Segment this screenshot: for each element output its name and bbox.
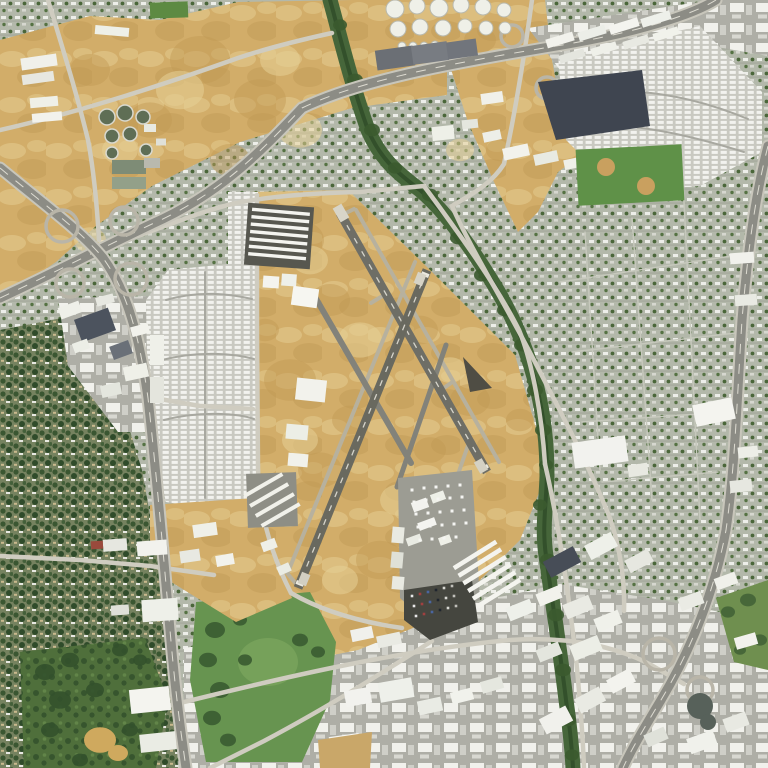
field-mottling-dark-17 (506, 409, 534, 431)
ballpark (576, 144, 685, 205)
park-central-trees-5 (238, 654, 252, 665)
detention-pond-1 (700, 714, 716, 730)
parked-aircraft-18 (453, 523, 456, 526)
parked-cars-11 (453, 595, 456, 598)
field-mottling-dark-7 (414, 437, 446, 463)
creek-trees-2 (364, 124, 380, 137)
parked-aircraft-4 (459, 484, 462, 487)
oil-tank-farm-6 (390, 21, 406, 37)
oil-tank-farm-7 (412, 19, 428, 35)
creek-trees-3 (388, 162, 402, 173)
golf-trees-7 (41, 723, 59, 737)
parked-cars-12 (415, 615, 418, 618)
sports-field-north-0 (150, 1, 189, 18)
field-mottling-dark-11 (234, 79, 286, 121)
field-mottling-light-9 (446, 139, 474, 161)
parked-aircraft-19 (465, 522, 468, 525)
parked-aircraft-5 (413, 501, 416, 504)
hangars-west-0 (263, 275, 280, 288)
treatment-plant-tanks-6 (106, 147, 118, 159)
parked-aircraft-14 (463, 509, 466, 512)
park-central-trees-3 (203, 711, 221, 725)
parked-aircraft-17 (441, 524, 444, 527)
treatment-plant-basins-0 (112, 160, 146, 174)
golf-trees-1 (61, 653, 79, 667)
golf-trees-2 (112, 644, 128, 657)
parked-cars-14 (431, 611, 434, 614)
hangars-west-3 (295, 377, 327, 402)
golf-trees-8 (122, 724, 138, 737)
parked-cars-2 (427, 591, 430, 594)
oil-tank-farm-8 (435, 20, 451, 36)
park-central-trees-1 (199, 653, 217, 667)
parked-aircraft-3 (447, 485, 450, 488)
parked-aircraft-21 (431, 538, 434, 541)
parked-aircraft-23 (455, 536, 458, 539)
golf-trees-3 (133, 654, 147, 665)
park-central-trees-8 (311, 646, 325, 657)
parked-cars-3 (435, 589, 438, 592)
parked-aircraft-12 (439, 511, 442, 514)
parked-aircraft-2 (435, 486, 438, 489)
commercial-freeway-west-4 (103, 538, 128, 552)
oil-tank-farm-10 (479, 21, 493, 35)
parked-cars-16 (447, 607, 450, 610)
ballpark-0 (576, 144, 685, 205)
parked-cars-10 (445, 597, 448, 600)
treatment-plant-basins-2 (144, 158, 160, 168)
golf-sand-patches-1 (108, 745, 128, 761)
commercial-freeway-west-2 (129, 686, 171, 714)
oil-tank-farm-2 (430, 0, 448, 17)
oil-tank-farm-4 (475, 0, 491, 15)
industrial-leftmid-buildings-8 (150, 335, 164, 365)
parked-aircraft-13 (451, 510, 454, 513)
oil-tank-farm-9 (458, 19, 472, 33)
treatment-plant-tanks-3 (105, 129, 119, 143)
parked-cars-9 (437, 599, 440, 602)
creek-trees-14 (548, 609, 564, 622)
commercial-freeway-west-5 (91, 541, 104, 550)
field-mottling-light-5 (322, 566, 358, 595)
parked-aircraft-0 (411, 489, 414, 492)
park-central-trees-7 (292, 634, 308, 647)
creek-trees-12 (533, 499, 547, 510)
terminal-buildings-7 (391, 576, 404, 590)
treatment-plant-tanks-0 (99, 109, 115, 125)
hangars-west-2 (291, 286, 319, 308)
parked-cars-8 (429, 601, 432, 604)
commercial-freeway-west-3 (139, 731, 177, 753)
parked-cars-4 (443, 587, 446, 590)
park-central-trees-4 (220, 734, 236, 747)
parked-cars-7 (421, 603, 424, 606)
industrial-topleft-buildings-5 (144, 124, 156, 132)
creek-trees-15 (555, 664, 571, 677)
park-right-trees-1 (740, 594, 756, 607)
field-mottling-dark-13 (70, 54, 110, 86)
commercial-freeway-west-0 (137, 539, 168, 556)
creek-trees-17 (565, 749, 579, 760)
hangars-west-1 (281, 273, 297, 286)
parked-cars-15 (439, 609, 442, 612)
parked-aircraft-11 (427, 512, 430, 515)
oil-tank-farm-3 (453, 0, 469, 13)
ball-diamonds-1 (637, 177, 655, 195)
parked-cars-1 (419, 593, 422, 596)
parked-aircraft-15 (417, 526, 420, 529)
golf-trees-4 (49, 691, 71, 709)
parked-aircraft-6 (425, 499, 428, 502)
oil-tank-farm-11 (499, 22, 511, 34)
parked-aircraft-20 (419, 539, 422, 542)
golf-trees-9 (72, 754, 88, 767)
parked-aircraft-10 (415, 513, 418, 516)
treatment-plant-tanks-4 (123, 127, 137, 141)
oil-tank-farm-1 (409, 0, 425, 14)
parked-aircraft-8 (449, 497, 452, 500)
park-right-trees-0 (721, 606, 735, 617)
warehouses-top-4 (431, 125, 454, 141)
ball-diamonds-0 (597, 158, 615, 176)
parked-cars-6 (413, 605, 416, 608)
hangars-west-5 (287, 453, 308, 468)
oil-tank-farm-5 (497, 3, 511, 17)
treatment-plant-tanks-5 (140, 144, 152, 156)
golf-trees-5 (86, 683, 104, 697)
satellite-aerial-photo (0, 0, 768, 768)
treatment-plant-tanks-1 (117, 105, 133, 121)
terminal-buildings-5 (391, 527, 404, 544)
commercial-freeway-west-1 (141, 598, 178, 622)
parked-cars-5 (451, 585, 454, 588)
commercial-freeway-west-6 (111, 604, 130, 615)
creek-trees-0 (333, 19, 347, 30)
commercial-right-edge-1 (735, 294, 758, 307)
parked-cars-0 (411, 595, 414, 598)
industrial-leftmid-buildings-9 (150, 377, 164, 403)
commercial-right-edge-4 (729, 479, 752, 493)
parked-aircraft-9 (461, 496, 464, 499)
warehouses-top-5 (462, 119, 479, 130)
hangars-west-4 (285, 424, 308, 441)
commercial-right-edge-0 (730, 252, 755, 265)
oil-tank-farm-0 (386, 0, 404, 18)
industrial-topleft-buildings-6 (156, 139, 166, 146)
parked-cars-13 (423, 613, 426, 616)
parked-aircraft-7 (437, 498, 440, 501)
aerial-image-canvas (0, 0, 768, 768)
park-central-trees-0 (205, 622, 225, 638)
parked-aircraft-1 (423, 487, 426, 490)
golf-trees-0 (35, 664, 55, 680)
commercial-right-edge-3 (737, 445, 758, 458)
treatment-plant-tanks-2 (136, 110, 150, 124)
terminal-buildings-6 (390, 552, 403, 569)
parked-cars-17 (455, 605, 458, 608)
parked-aircraft-22 (443, 537, 446, 540)
parked-aircraft-16 (429, 525, 432, 528)
treatment-plant-basins-1 (112, 177, 146, 189)
sports-field-north (150, 1, 189, 18)
